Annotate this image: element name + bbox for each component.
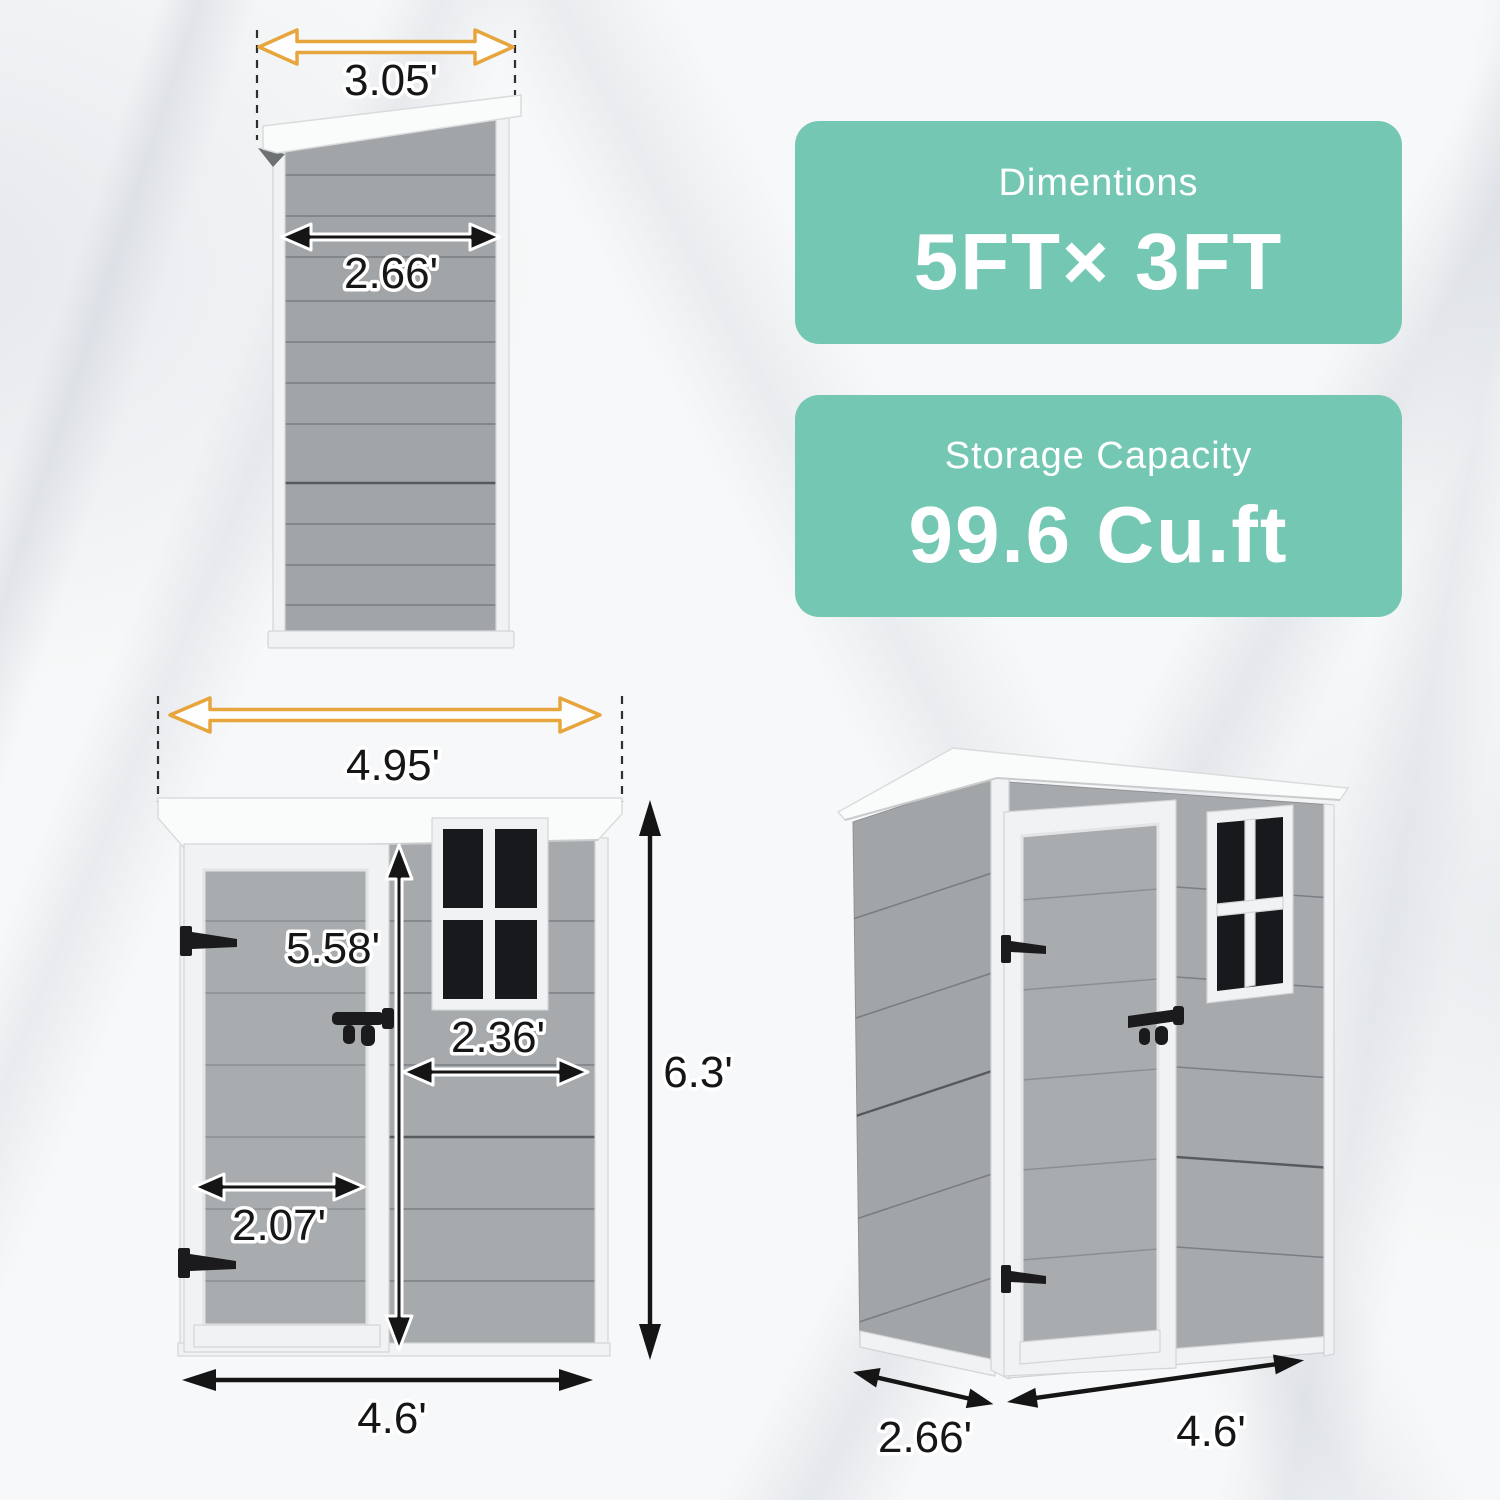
storage-capacity-badge-value: 99.6 Cu.ft bbox=[908, 495, 1288, 575]
window bbox=[432, 818, 548, 1010]
side-right-trim bbox=[496, 116, 509, 633]
door-sill bbox=[194, 1325, 380, 1347]
front-right-corner-trim bbox=[595, 838, 608, 1355]
dimension-label-depth: 2.66' bbox=[878, 1413, 972, 1462]
dimension-label-side-wall-width: 2.66' bbox=[344, 249, 438, 298]
door bbox=[1004, 800, 1176, 1376]
side-view-diagram: 3.05' 2.66' bbox=[228, 0, 548, 680]
dimension-label-door-width: 2.07' bbox=[232, 1201, 326, 1250]
dimensions-badge: Dimentions 5FT× 3FT bbox=[795, 121, 1402, 344]
roof-width-arrow-icon bbox=[170, 698, 600, 732]
dimensions-badge-title: Dimentions bbox=[998, 164, 1198, 202]
side-left-trim bbox=[273, 148, 285, 633]
dimension-label-door-height: 5.58' bbox=[286, 924, 380, 973]
side-base-trim bbox=[268, 631, 514, 648]
dimensions-badge-value: 5FT× 3FT bbox=[914, 222, 1283, 302]
dimension-label-total-height: 6.3' bbox=[663, 1048, 733, 1097]
dimension-label-base-width: 4.6' bbox=[357, 1394, 427, 1443]
dimension-label-window-width: 2.36' bbox=[451, 1013, 545, 1062]
storage-capacity-badge: Storage Capacity 99.6 Cu.ft bbox=[795, 395, 1402, 617]
base-width-arrow-icon bbox=[182, 1369, 593, 1391]
front-right-corner-trim bbox=[1324, 804, 1334, 1356]
dimension-label-width: 4.6' bbox=[1176, 1407, 1246, 1456]
front-view-diagram: 4.95' bbox=[140, 680, 760, 1500]
total-height-arrow-icon bbox=[639, 800, 661, 1360]
dimension-label-side-roof-width: 3.05' bbox=[344, 56, 438, 105]
side-wall bbox=[285, 119, 496, 633]
window bbox=[1207, 805, 1293, 1003]
perspective-view-diagram: 2.66' 4.6' bbox=[810, 720, 1430, 1480]
door bbox=[184, 844, 389, 1352]
marble-background: 3.05' 2.66' 4.95' bbox=[0, 0, 1500, 1500]
side-wall bbox=[853, 775, 995, 1376]
storage-capacity-badge-title: Storage Capacity bbox=[945, 437, 1253, 475]
dimension-label-front-roof-width: 4.95' bbox=[346, 741, 440, 790]
